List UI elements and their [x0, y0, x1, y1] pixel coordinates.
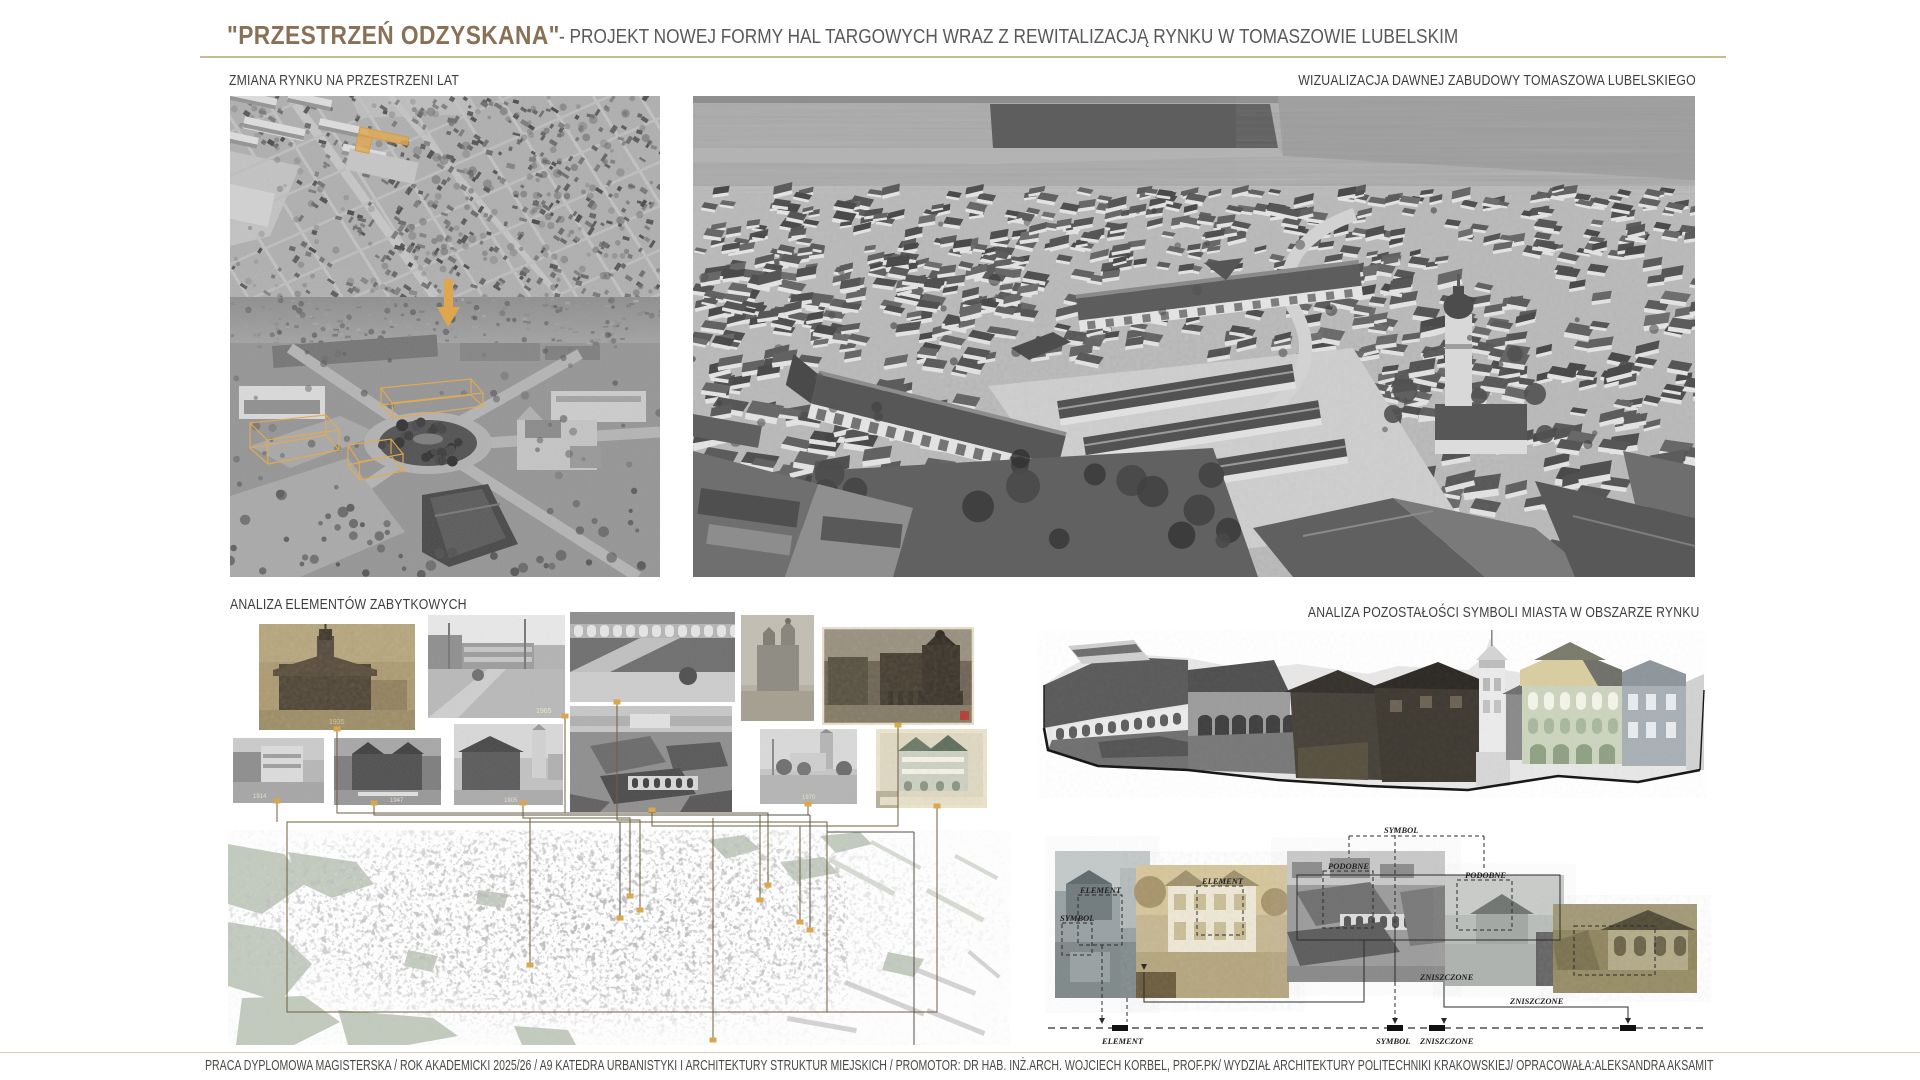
svg-text:ZNISZCZONE: ZNISZCZONE: [1509, 996, 1564, 1006]
svg-text:ELEMENT: ELEMENT: [1079, 885, 1122, 895]
svg-text:SYMBOL: SYMBOL: [1376, 1036, 1410, 1046]
svg-text:ELEMENT: ELEMENT: [1201, 876, 1244, 886]
svg-text:SYMBOL: SYMBOL: [1060, 913, 1094, 923]
svg-text:PODOBNE: PODOBNE: [1328, 861, 1369, 871]
svg-text:PODOBNE: PODOBNE: [1465, 870, 1506, 880]
svg-text:SYMBOL: SYMBOL: [1384, 825, 1418, 835]
svg-text:ELEMENT: ELEMENT: [1101, 1036, 1144, 1046]
svg-text:ZNISZCZONE: ZNISZCZONE: [1419, 1036, 1474, 1046]
svg-text:ZNISZCZONE: ZNISZCZONE: [1419, 972, 1474, 982]
